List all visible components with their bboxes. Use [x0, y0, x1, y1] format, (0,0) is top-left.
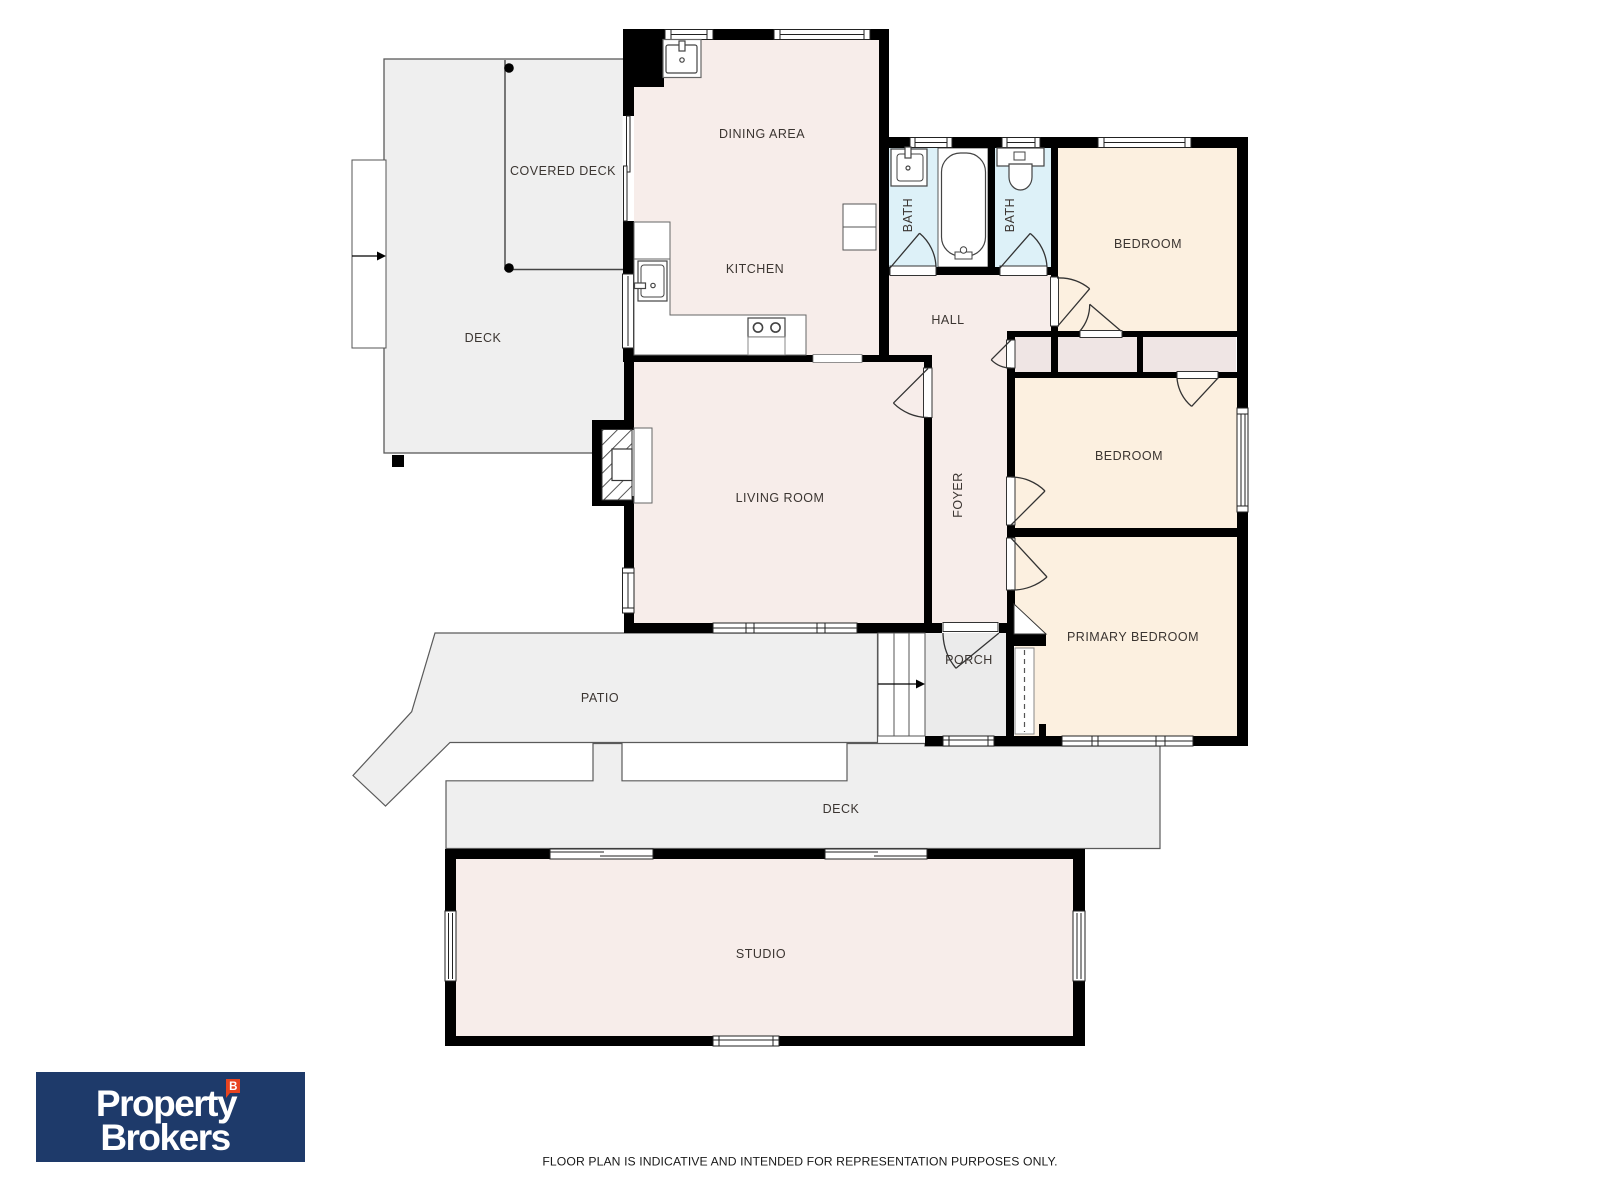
svg-text:BEDROOM: BEDROOM — [1114, 237, 1182, 251]
svg-text:FOYER: FOYER — [951, 472, 965, 518]
svg-text:PATIO: PATIO — [581, 691, 619, 705]
svg-text:BATH: BATH — [901, 198, 915, 232]
svg-text:DECK: DECK — [465, 331, 502, 345]
svg-text:Brokers: Brokers — [100, 1117, 230, 1158]
svg-text:COVERED DECK: COVERED DECK — [510, 164, 616, 178]
svg-text:STUDIO: STUDIO — [736, 947, 786, 961]
svg-text:LIVING ROOM: LIVING ROOM — [736, 491, 825, 505]
svg-text:FLOOR PLAN IS INDICATIVE AND I: FLOOR PLAN IS INDICATIVE AND INTENDED FO… — [542, 1155, 1057, 1169]
svg-text:DINING AREA: DINING AREA — [719, 127, 805, 141]
svg-text:BATH: BATH — [1003, 198, 1017, 232]
svg-text:HALL: HALL — [931, 313, 964, 327]
svg-text:PRIMARY BEDROOM: PRIMARY BEDROOM — [1067, 630, 1199, 644]
svg-text:DECK: DECK — [823, 802, 860, 816]
svg-text:PORCH: PORCH — [945, 653, 993, 667]
svg-text:KITCHEN: KITCHEN — [726, 262, 784, 276]
svg-text:B: B — [229, 1081, 237, 1093]
svg-text:BEDROOM: BEDROOM — [1095, 449, 1163, 463]
